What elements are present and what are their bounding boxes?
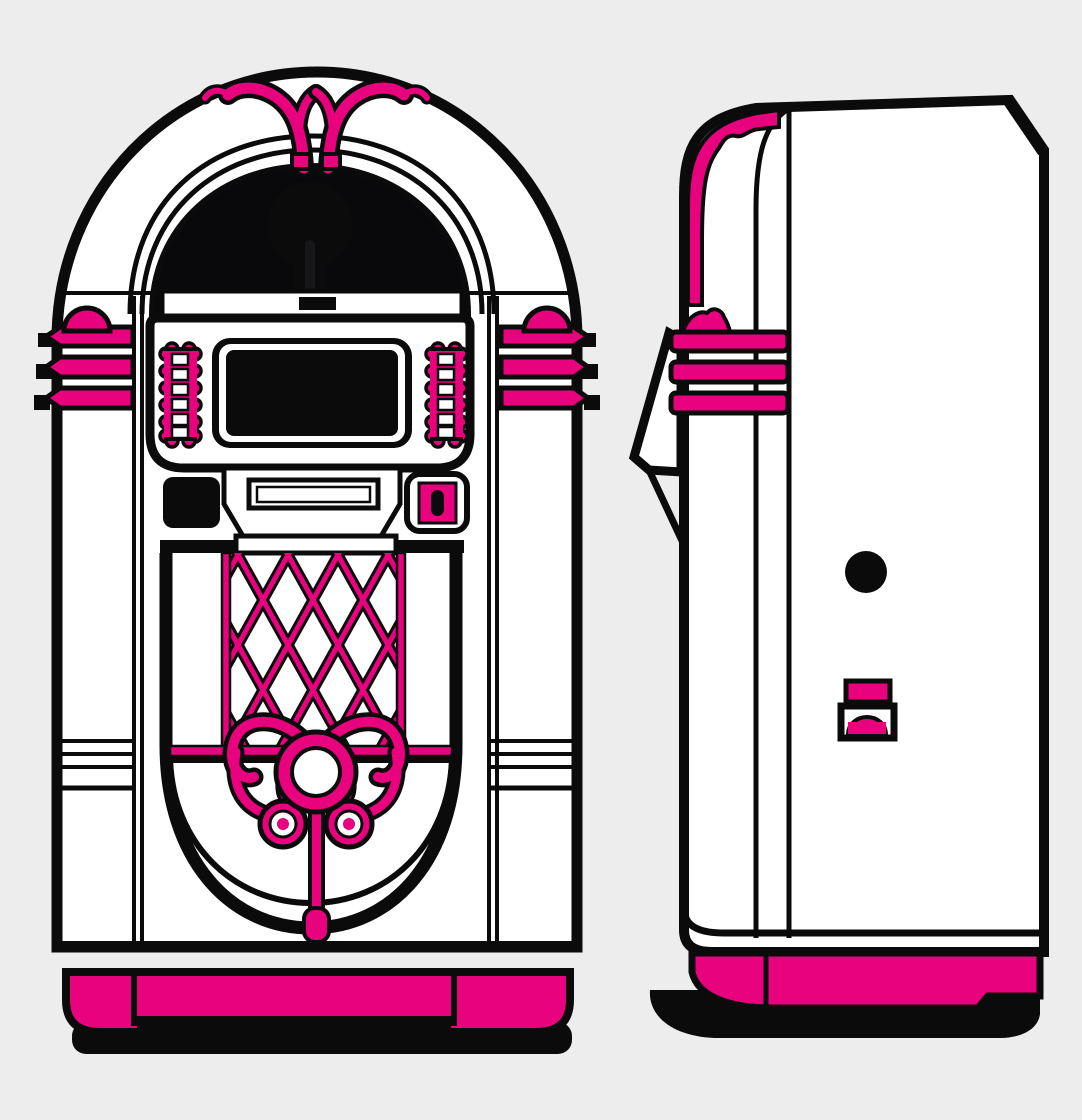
- side-body: [684, 100, 1044, 952]
- side-knob: [845, 551, 887, 593]
- screen-bezel: [212, 338, 412, 448]
- title-strip-inner: [257, 487, 370, 502]
- tassel-stem: [310, 795, 323, 925]
- credit-button-bar: [431, 490, 444, 516]
- ornament-strip-right: [426, 343, 467, 447]
- jukebox-illustration: [0, 0, 1082, 1120]
- ornament-strip-left: [160, 343, 201, 447]
- credit-button: [407, 474, 467, 531]
- side-base-plinth: [692, 953, 1040, 1008]
- coin-panel: [163, 477, 220, 528]
- grille-top-bar: [236, 536, 396, 553]
- side-wedge-seam: [649, 470, 684, 545]
- side-latch: [841, 681, 894, 738]
- base-plinth: [66, 972, 570, 1036]
- base-center-recess: [137, 1016, 451, 1036]
- side-jukebox: [634, 100, 1044, 1038]
- screen: [226, 350, 398, 436]
- front-jukebox: [34, 72, 600, 1054]
- marquee-slot: [299, 297, 336, 310]
- ornament-ring: [276, 732, 356, 812]
- tassel-foot: [304, 908, 329, 942]
